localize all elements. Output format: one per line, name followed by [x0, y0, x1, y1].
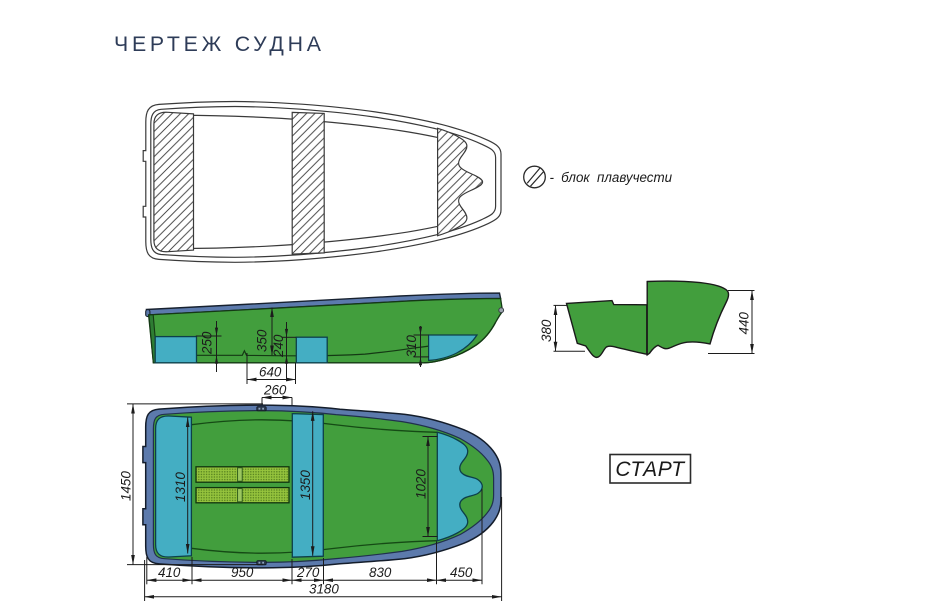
svg-text:380: 380	[539, 319, 554, 342]
svg-text:ЧЕРТЕЖ СУДНА: ЧЕРТЕЖ СУДНА	[114, 32, 325, 56]
svg-text:3180: 3180	[309, 581, 339, 596]
svg-text:240: 240	[271, 334, 286, 358]
svg-text:250: 250	[200, 331, 215, 355]
svg-text:СТАРТ: СТАРТ	[615, 458, 686, 481]
svg-text:450: 450	[450, 565, 473, 580]
svg-text:640: 640	[259, 365, 282, 380]
svg-text:950: 950	[231, 565, 254, 580]
svg-text:1310: 1310	[173, 472, 188, 502]
svg-text:440: 440	[737, 312, 752, 335]
svg-text:830: 830	[369, 565, 392, 580]
svg-text:1020: 1020	[414, 469, 429, 499]
svg-text:260: 260	[263, 383, 287, 398]
svg-text:310: 310	[404, 335, 419, 358]
svg-text:1350: 1350	[298, 470, 313, 500]
svg-text:1450: 1450	[119, 471, 134, 501]
svg-text:- блок плавучести: - блок плавучести	[550, 170, 673, 185]
svg-text:410: 410	[158, 565, 181, 580]
svg-text:350: 350	[255, 329, 270, 352]
svg-text:270: 270	[296, 565, 320, 580]
